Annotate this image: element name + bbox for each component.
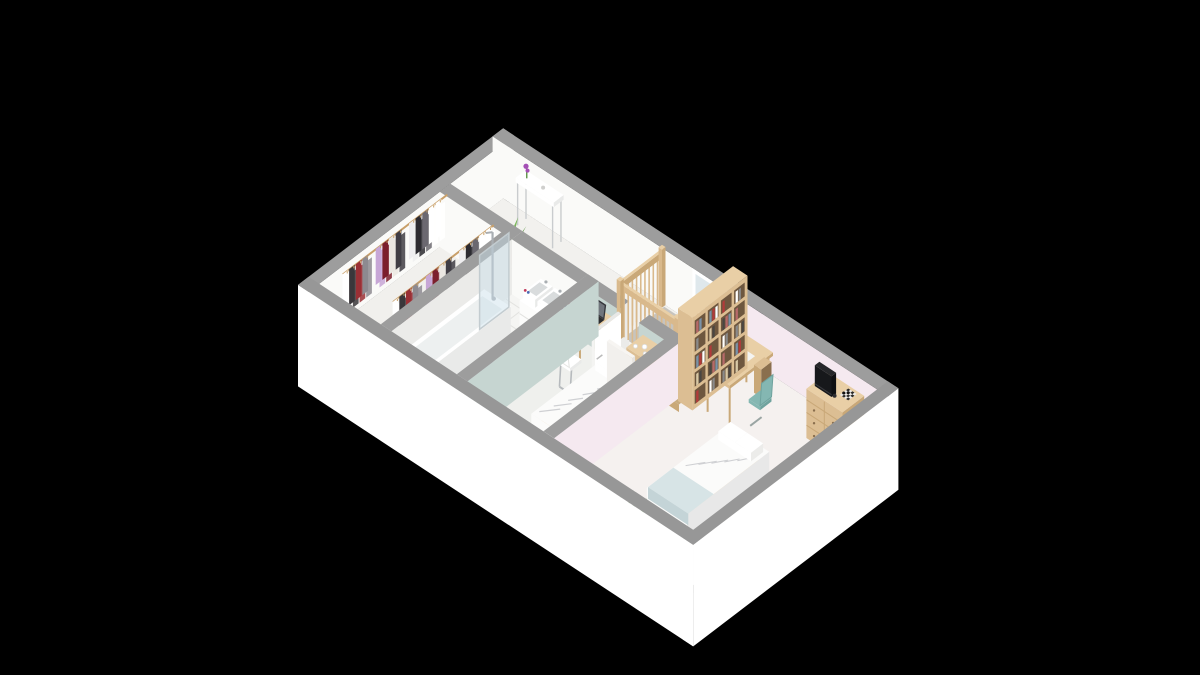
render-canvas [0, 0, 1200, 675]
floorplan-3d-render [0, 0, 1200, 675]
